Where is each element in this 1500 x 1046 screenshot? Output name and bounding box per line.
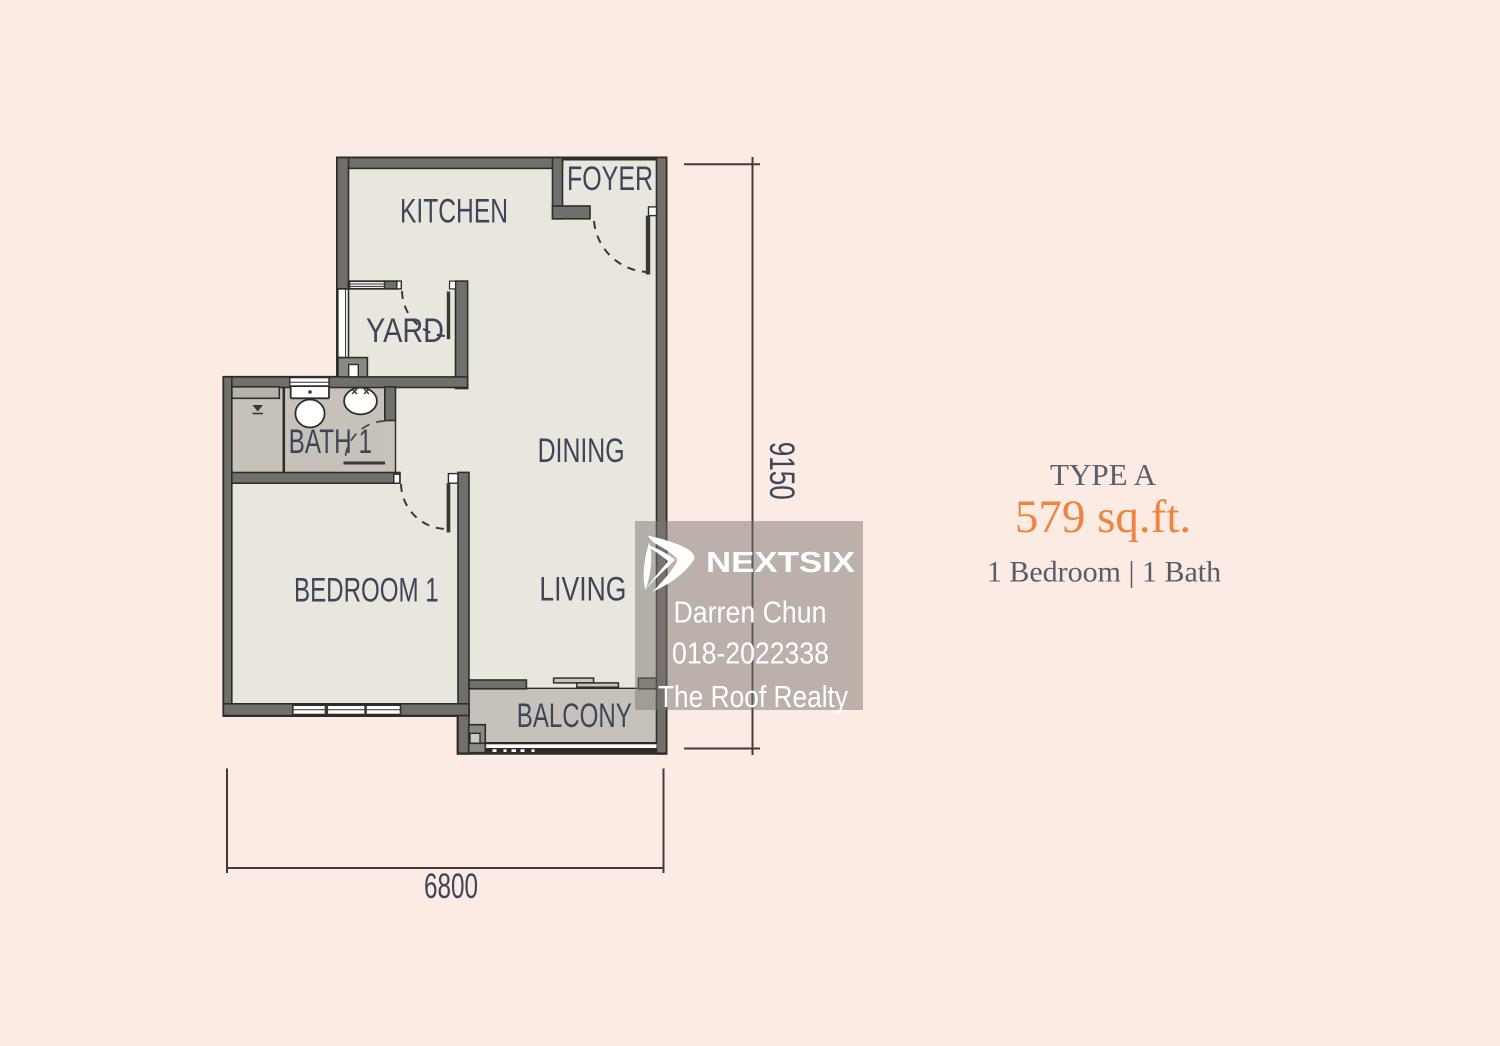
svg-text:The Roof Realty: The Roof Realty (658, 679, 848, 714)
svg-text:NEXTSIX: NEXTSIX (706, 547, 856, 579)
svg-text:LIVING: LIVING (539, 571, 626, 609)
svg-text:BATH 1: BATH 1 (289, 423, 372, 461)
svg-text:018-2022338: 018-2022338 (672, 636, 829, 671)
svg-text:1 Bedroom | 1 Bath: 1 Bedroom | 1 Bath (987, 556, 1221, 589)
svg-text:6800: 6800 (424, 867, 478, 906)
svg-text:FOYER: FOYER (567, 160, 653, 198)
svg-text:Darren Chun: Darren Chun (674, 595, 827, 630)
svg-text:TYPE A: TYPE A (1050, 457, 1157, 492)
svg-text:YARD: YARD (366, 312, 444, 350)
svg-text:KITCHEN: KITCHEN (400, 193, 508, 231)
svg-text:BALCONY: BALCONY (517, 697, 632, 735)
svg-text:BEDROOM 1: BEDROOM 1 (294, 572, 439, 610)
svg-text:579 sq.ft.: 579 sq.ft. (1015, 491, 1191, 543)
svg-text:9150: 9150 (762, 442, 801, 500)
svg-text:DINING: DINING (538, 432, 625, 470)
